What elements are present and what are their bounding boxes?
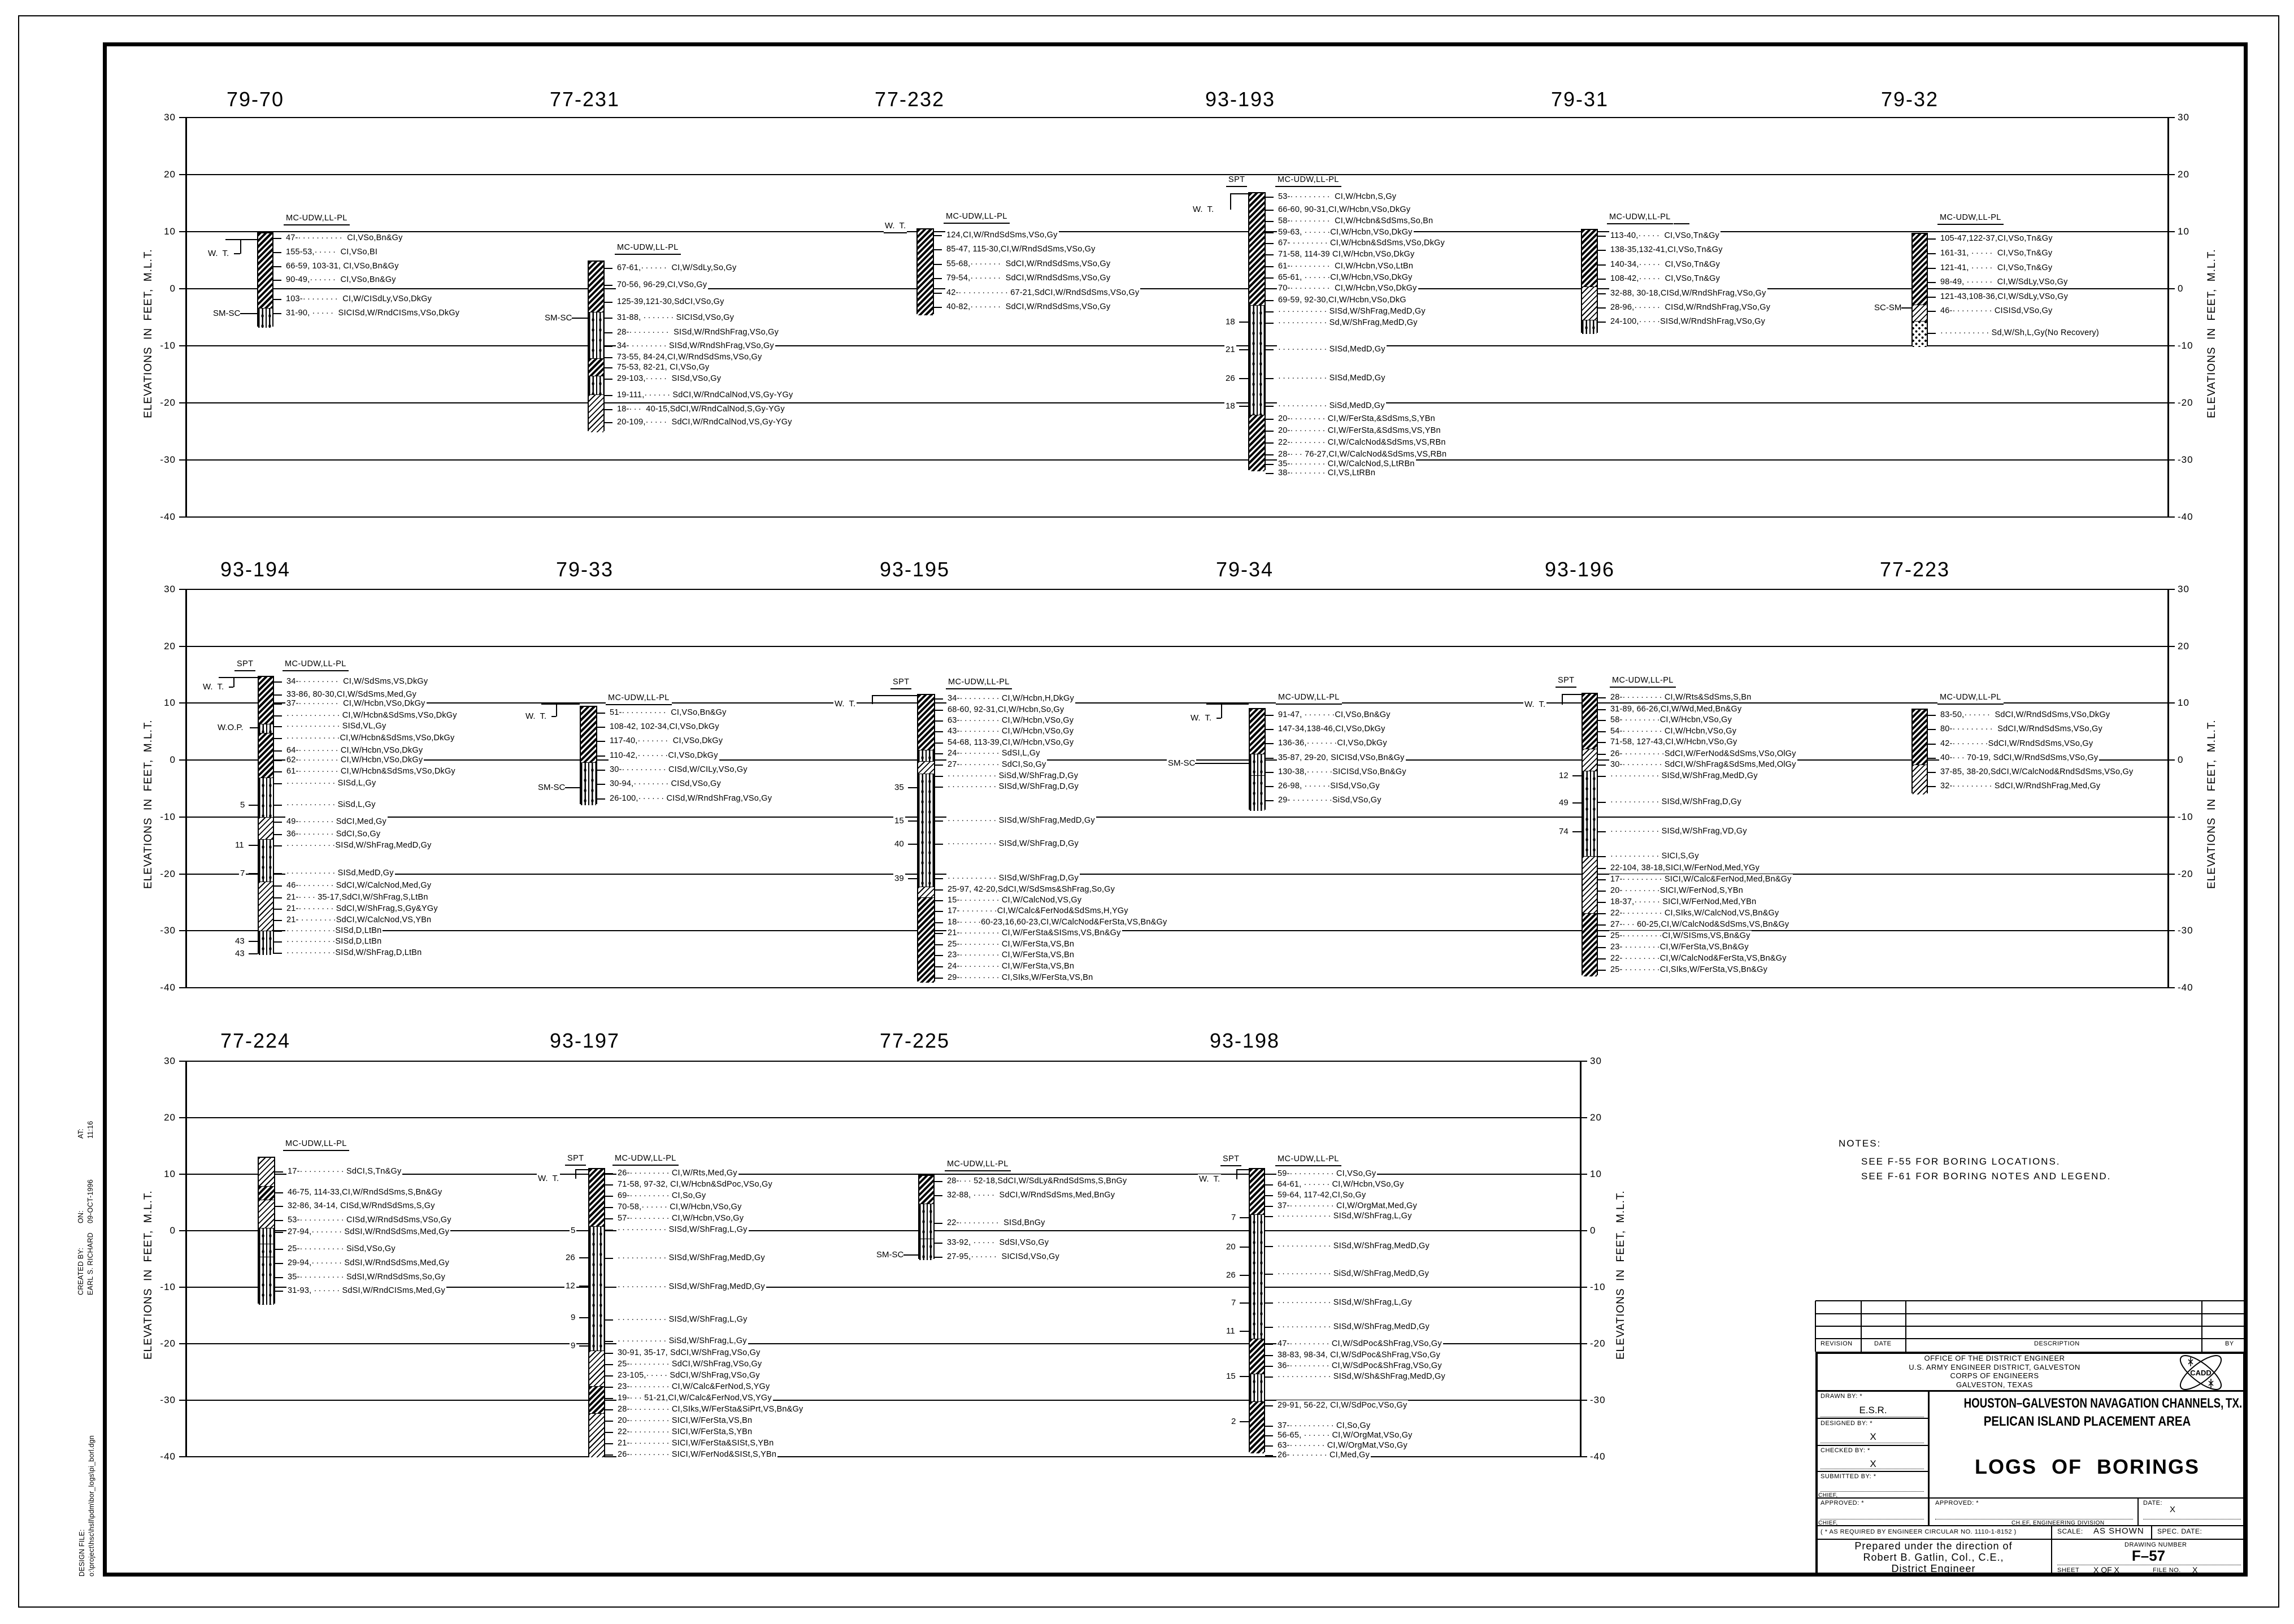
svg-text:CADD: CADD [2190, 1369, 2212, 1377]
